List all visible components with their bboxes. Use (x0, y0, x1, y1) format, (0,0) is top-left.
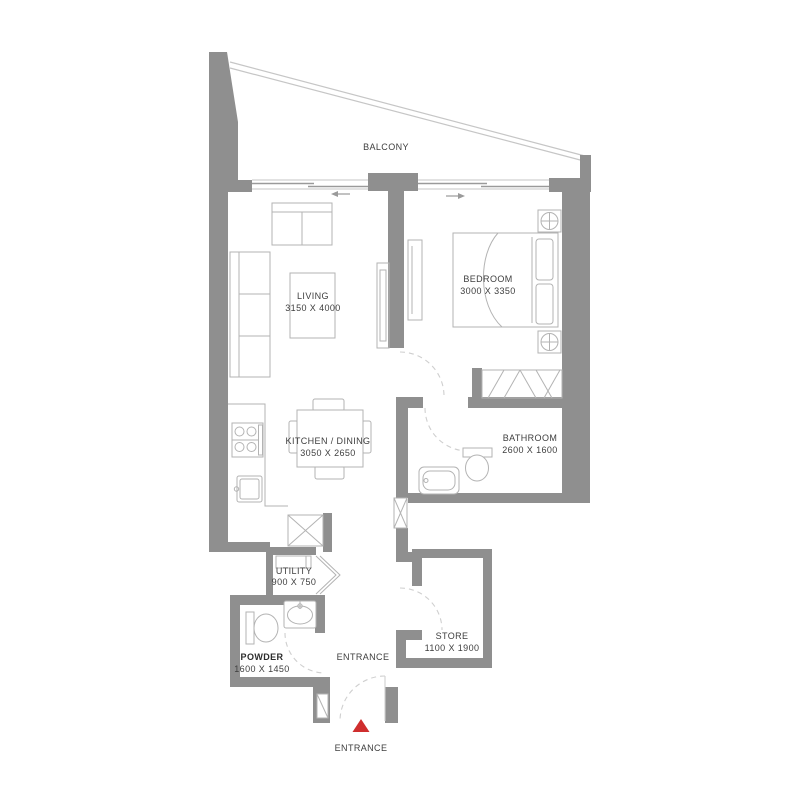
balcony-label: BALCONY (363, 142, 409, 152)
wall-hall-right-lower (396, 528, 408, 552)
nightstand-bottom (538, 331, 561, 353)
entrance-jamb (317, 694, 328, 718)
slider-arrow-right (446, 193, 465, 199)
floorplan-canvas: BALCONY LIVING 3150 X 4000 BEDROOM 3000 … (0, 0, 800, 800)
kitchen-fixtures (228, 404, 288, 506)
entrance-marker-triangle (353, 719, 370, 732)
living-dimensions: 3150 X 4000 (285, 303, 340, 313)
wardrobe (482, 370, 562, 398)
kitchen-dining-label: KITCHEN / DINING (286, 436, 371, 446)
powder-dimensions: 1600 X 1450 (234, 664, 289, 674)
wall-balcony-center-pillar (368, 173, 418, 191)
bathroom-dimensions: 2600 X 1600 (502, 445, 557, 455)
wall-hall-right-upper (396, 408, 408, 498)
wall-top-left-pillar (209, 52, 238, 192)
utility-label: UTILITY (276, 566, 312, 576)
living-furniture (230, 203, 389, 377)
stove (232, 423, 263, 457)
bathroom-fixtures (419, 448, 492, 494)
wall-shaft-right (323, 513, 332, 552)
wall-utility-top (266, 547, 316, 555)
utility-dimensions: 900 X 750 (272, 577, 317, 587)
wall-store-left-lower (396, 630, 406, 668)
store-dimensions: 1100 X 1900 (425, 643, 480, 653)
bedroom-dresser (408, 240, 422, 320)
dining-chair-bottom (315, 466, 344, 479)
wall-powder-left (230, 605, 240, 687)
dining-chair-top (313, 399, 344, 411)
bathtub (419, 467, 459, 494)
powder-fixtures (246, 601, 316, 644)
tv-unit (377, 263, 389, 348)
bedroom-dimensions: 3000 X 3350 (460, 286, 515, 296)
wall-living-bedroom-divider (388, 191, 404, 348)
wall-balcony-stub-right (549, 178, 591, 192)
entrance-hall-label: ENTRANCE (337, 652, 390, 662)
wall-store-left-upper (412, 562, 422, 586)
wall-powder-bottom (230, 677, 330, 687)
wall-kitchen-bottom (209, 542, 270, 552)
kitchen-dining-dimensions: 3050 X 2650 (300, 448, 355, 458)
sofa-vertical (230, 252, 270, 377)
utility-bifold-door (320, 556, 340, 594)
bedroom-label: BEDROOM (463, 274, 512, 284)
wall-balcony-stub-left (228, 180, 252, 192)
powder-label: POWDER (241, 652, 284, 662)
powder-toilet (246, 612, 278, 644)
wall-store-right (483, 549, 492, 668)
slider-arrow-left (331, 191, 350, 197)
wall-store-bottom (396, 658, 492, 668)
powder-sink (284, 601, 316, 628)
bedroom-furniture (408, 210, 562, 398)
nightstand-top (538, 210, 561, 232)
entrance-door-label: ENTRANCE (335, 743, 388, 753)
powder-door-arc (285, 633, 325, 673)
floorplan-drawing: BALCONY LIVING 3150 X 4000 BEDROOM 3000 … (0, 0, 800, 800)
shaft-hall (394, 498, 407, 528)
wall-bedroom-bottom-b (468, 397, 562, 408)
entrance-door-arc (340, 676, 385, 721)
wall-left (209, 192, 228, 552)
shaft-kitchen (288, 515, 323, 546)
wall-wardrobe-stub (472, 368, 482, 408)
wall-bedroom-bottom-a (396, 397, 423, 408)
sofa-horizontal (272, 203, 332, 245)
store-door-arc (400, 588, 442, 630)
bedroom-door-arc (400, 352, 444, 396)
wall-store-top (412, 549, 492, 558)
wall-right-top (580, 155, 591, 180)
wall-entrance-right (385, 687, 398, 723)
kitchen-sink (234, 476, 262, 502)
wall-right (562, 192, 590, 503)
living-label: LIVING (297, 291, 329, 301)
store-label: STORE (436, 631, 469, 641)
bathroom-label: BATHROOM (503, 433, 558, 443)
wall-utility-left (266, 552, 273, 598)
bathroom-door-arc (425, 408, 468, 451)
bathroom-toilet (463, 448, 492, 481)
